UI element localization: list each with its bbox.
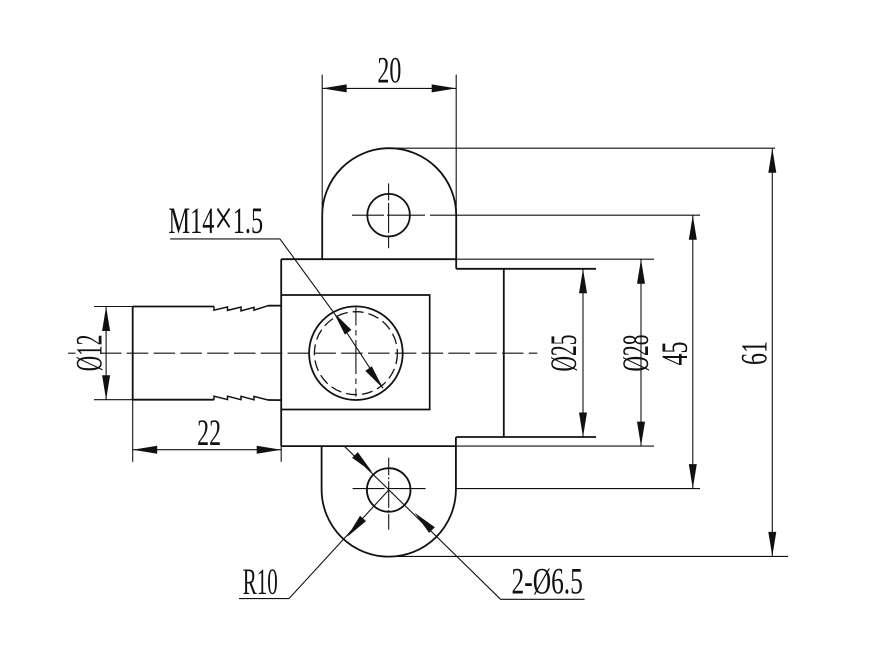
svg-text:2-Ø6.5: 2-Ø6.5 [511,561,582,602]
svg-text:Ø28: Ø28 [615,335,657,372]
svg-text:R10: R10 [243,561,278,603]
svg-text:Ø25: Ø25 [543,335,585,372]
svg-text:45: 45 [654,342,696,366]
svg-text:M14×1.5: M14×1.5 [169,191,264,247]
svg-text:20: 20 [377,49,401,91]
svg-text:Ø12: Ø12 [68,335,110,372]
svg-text:22: 22 [197,412,221,454]
svg-text:61: 61 [733,341,775,365]
